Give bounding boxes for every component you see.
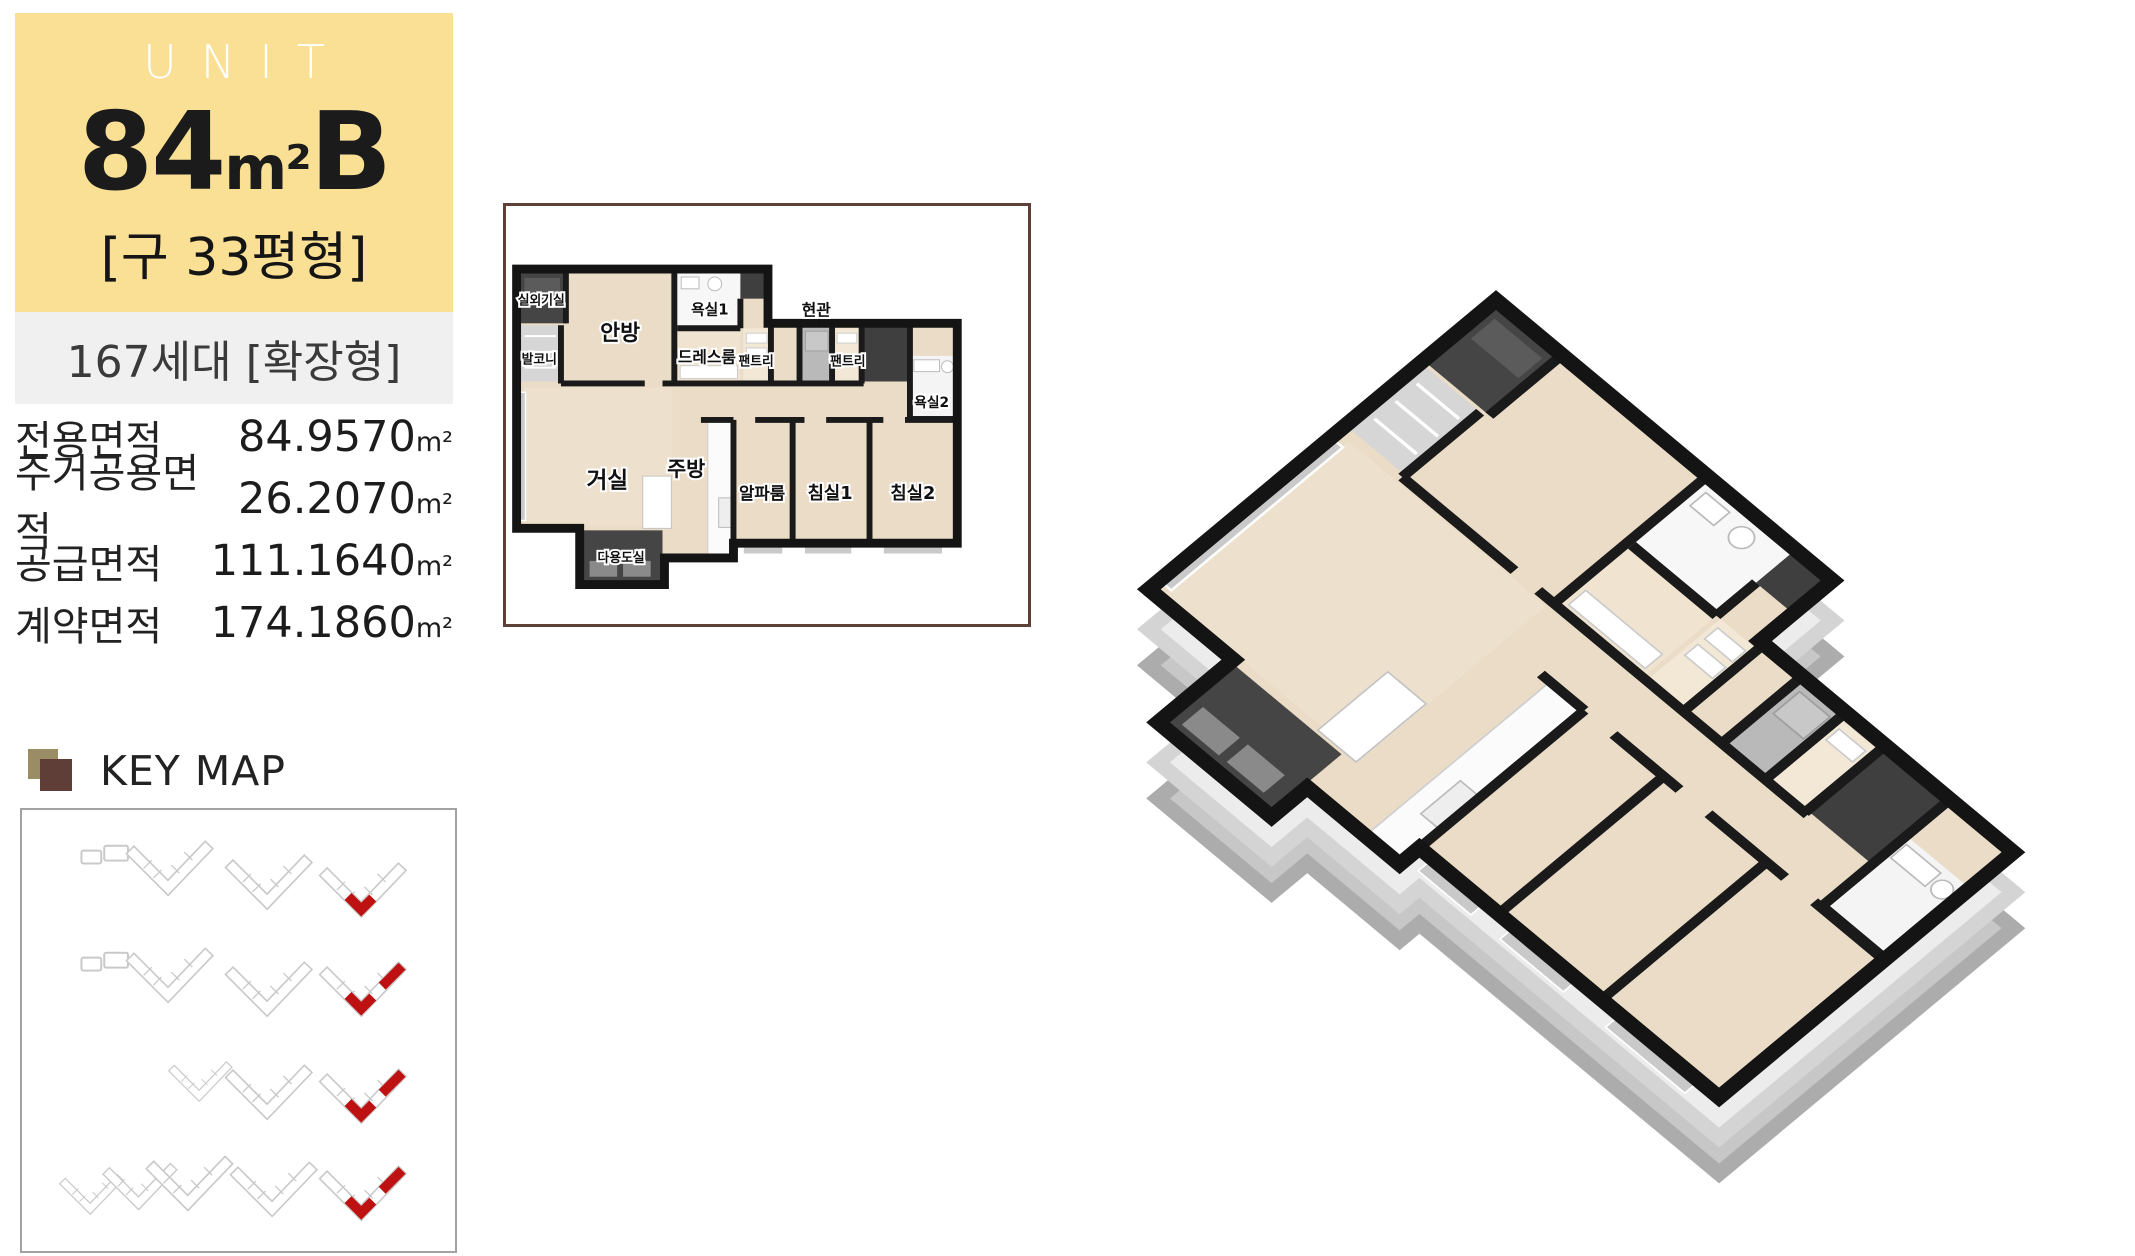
keymap-heading: KEY MAP: [28, 744, 286, 798]
keymap-building: [81, 953, 128, 971]
households-band: 167세대 [확장형]: [15, 312, 453, 404]
keymap-building: [233, 863, 304, 902]
room-label-pantry-1: 팬트리: [738, 354, 773, 370]
unit-type-letter: B: [310, 90, 390, 215]
unit-header: UNIT 84m²B [구 33평형]: [15, 13, 453, 312]
room-label-balcony: 발코니: [522, 352, 557, 368]
keymap-site-plan: [22, 810, 455, 1251]
area-label: 공급면적: [15, 532, 211, 590]
area-table: 전용면적 84.9570m² 주거공용면적 26.2070m² 공급면적 111…: [15, 406, 453, 654]
unit-size-unit: m²: [224, 134, 310, 204]
keymap-building: [233, 1073, 304, 1112]
room-label-living-room: 거실: [586, 468, 628, 494]
keymap-icon-front-square: [40, 759, 72, 791]
keymap-box: [20, 808, 457, 1253]
room-label-bedroom2: 침실2: [890, 483, 935, 504]
keymap-title: KEY MAP: [100, 747, 286, 795]
keymap-building-highlighted: [327, 1077, 398, 1116]
floor-plan-3d: [1040, 260, 2135, 1256]
keymap-building: [134, 956, 205, 995]
room-label-utility-room: 다용도실: [598, 550, 645, 566]
unit-size-title: 84m²B: [78, 99, 390, 207]
floor-plan-2d-box: 실외기실 발코니 안방 욕실1 드레스룸 팬트리 현관 팬트리 욕실2 거실 주…: [503, 203, 1031, 627]
area-value: 26.2070m²: [238, 474, 453, 524]
keymap-building: [134, 849, 205, 888]
room-label-dress-room: 드레스룸: [678, 348, 736, 367]
keymap-building-highlighted: [327, 970, 398, 1009]
area-row-contract: 계약면적 174.1860m²: [15, 592, 453, 654]
area-value: 84.9570m²: [238, 412, 453, 462]
keymap-building-highlighted: [327, 871, 398, 910]
floor-plan-2d-geometry: [517, 269, 958, 584]
room-label-bath1: 욕실1: [691, 301, 728, 318]
keymap-building: [174, 1067, 226, 1096]
unit-legacy-size: [구 33평형]: [101, 215, 368, 290]
keymap-building: [238, 1170, 309, 1209]
keymap-building: [65, 1180, 117, 1209]
area-value: 111.1640m²: [211, 536, 453, 586]
area-row-supply: 공급면적 111.1640m²: [15, 530, 453, 592]
floor-plan-2d: 실외기실 발코니 안방 욕실1 드레스룸 팬트리 현관 팬트리 욕실2 거실 주…: [506, 206, 1028, 624]
room-label-pantry-2: 팬트리: [830, 354, 865, 370]
room-label-bedroom1: 침실1: [808, 483, 853, 504]
keymap-building-highlighted: [327, 1174, 398, 1213]
unit-eyebrow: UNIT: [119, 35, 349, 89]
room-label-entrance: 현관: [802, 300, 832, 319]
room-label-master-bedroom: 안방: [600, 321, 640, 346]
keymap-building: [81, 846, 128, 864]
keymap-icon: [28, 747, 78, 795]
room-label-bath2: 욕실2: [914, 395, 949, 411]
area-label: 계약면적: [15, 594, 211, 652]
room-label-outdoor-unit: 실외기실: [518, 293, 565, 309]
room-label-kitchen: 주방: [667, 457, 705, 481]
keymap-building: [233, 970, 304, 1009]
area-value: 174.1860m²: [211, 598, 453, 648]
area-row-common: 주거공용면적 26.2070m²: [15, 468, 453, 530]
room-label-alpha-room: 알파룸: [739, 483, 785, 503]
unit-size-number: 84: [78, 90, 224, 215]
